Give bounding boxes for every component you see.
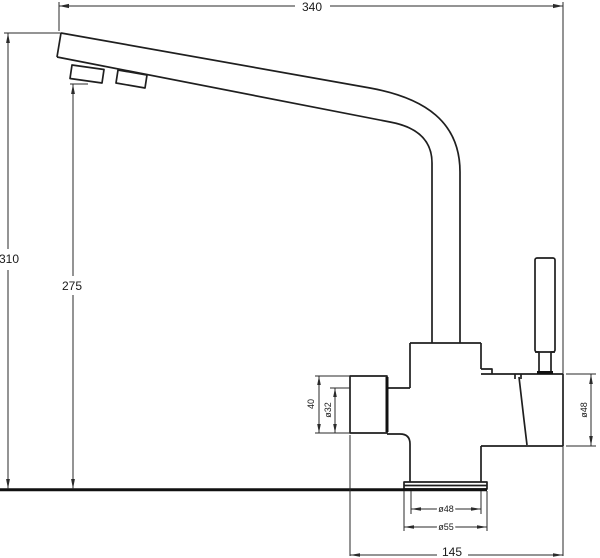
- faucet-diagram: 340 310 275 40 ø32 ø48: [0, 0, 600, 558]
- outlet-tube-bottom-edge: [387, 434, 410, 482]
- dim-outlet-height: 275: [62, 84, 88, 489]
- dim-label-spout-reach: 340: [302, 0, 322, 14]
- faucet-outline: [0, 33, 563, 490]
- dim-overall-height: 310: [0, 33, 61, 489]
- dim-label-outlet-height: 275: [62, 279, 82, 293]
- dim-valve-diameter: ø48: [566, 374, 596, 446]
- outlet-block: [350, 376, 387, 433]
- dim-label-base-pipe-diameter: ø48: [438, 504, 454, 514]
- dim-body-span: 145: [350, 435, 563, 558]
- dim-label-base-flange-diameter: ø55: [438, 522, 454, 532]
- aerator-nozzle-1: [70, 65, 104, 83]
- drawing-sheet: 340 310 275 40 ø32 ø48: [0, 0, 600, 558]
- aerator-nozzle-2: [116, 70, 147, 88]
- dim-label-overall-height: 310: [0, 252, 19, 266]
- handle-lever: [535, 258, 555, 352]
- handle-stem: [535, 352, 555, 371]
- dim-label-valve-diameter: ø48: [579, 402, 589, 418]
- dim-base-pipe-diameter: ø48: [411, 491, 481, 514]
- dim-outlet-diameter: ø32: [323, 388, 350, 433]
- dim-label-body-span: 145: [442, 545, 462, 558]
- spout-neck-inner-edge: [57, 57, 432, 343]
- valve-joint-line: [519, 377, 527, 445]
- dim-label-outlet-diameter: ø32: [323, 402, 333, 418]
- spout-end-cap: [57, 33, 61, 57]
- dim-label-outlet-length: 40: [306, 399, 316, 409]
